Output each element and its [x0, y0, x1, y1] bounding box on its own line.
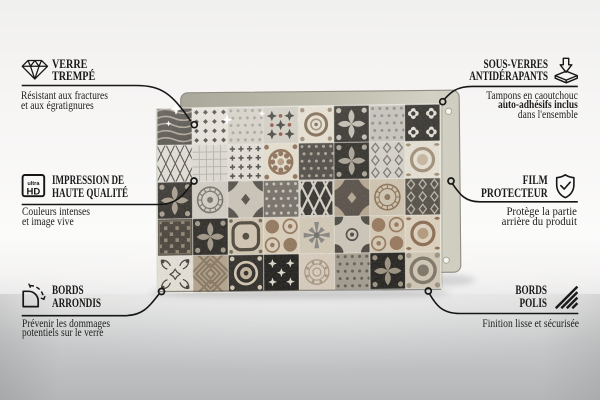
svg-text:HD: HD [27, 186, 41, 197]
